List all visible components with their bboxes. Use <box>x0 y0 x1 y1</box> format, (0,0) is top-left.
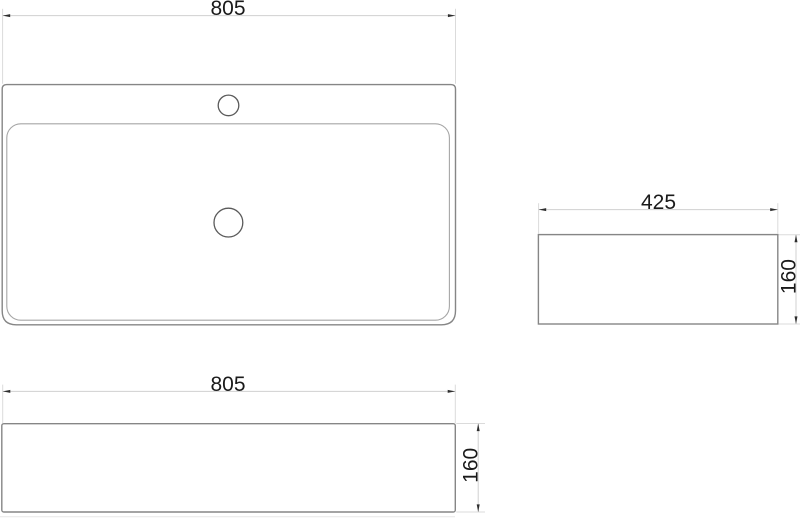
svg-text:160: 160 <box>778 259 800 294</box>
svg-text:805: 805 <box>210 373 245 396</box>
svg-text:805: 805 <box>210 0 245 20</box>
svg-text:160: 160 <box>459 448 482 483</box>
svg-text:425: 425 <box>641 191 676 214</box>
